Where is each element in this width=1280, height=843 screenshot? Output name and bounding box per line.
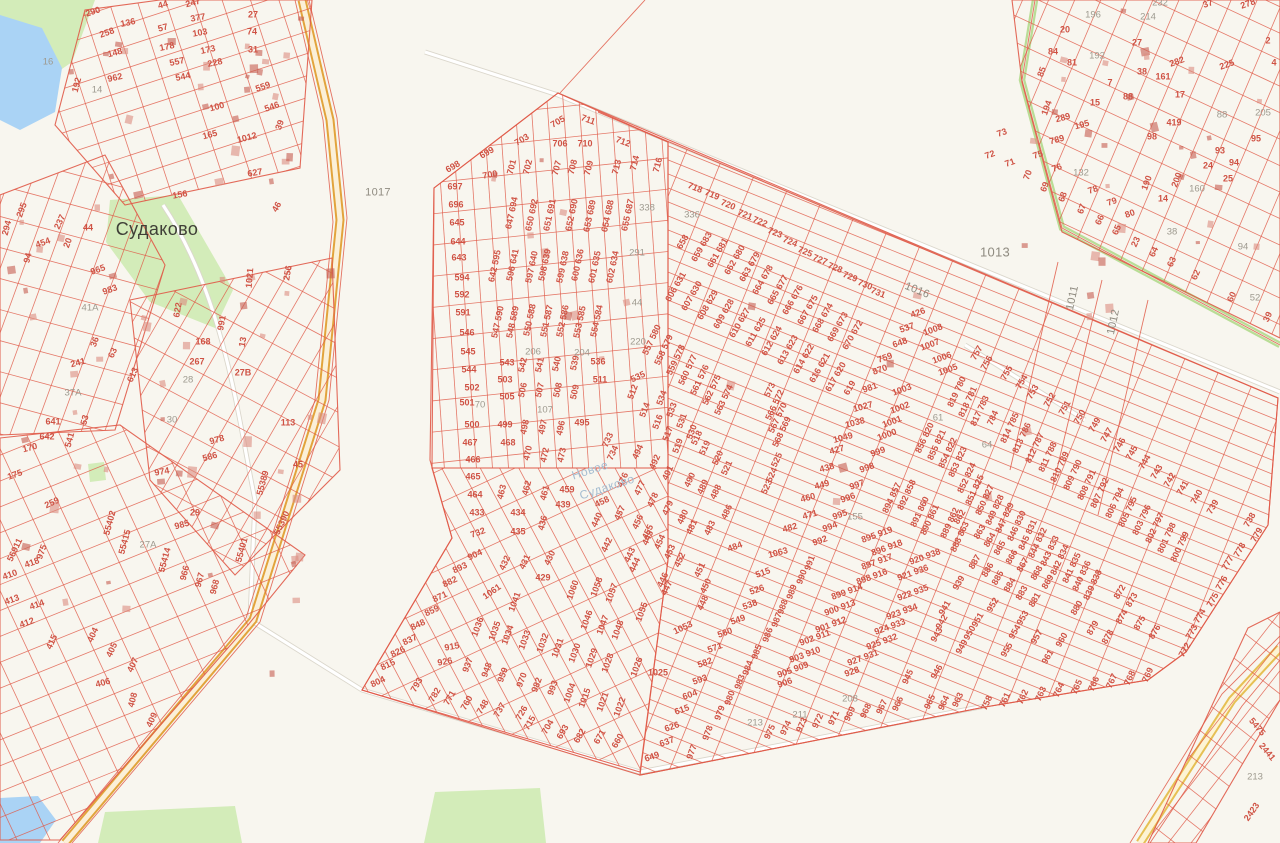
parcel-label[interactable]: 724 <box>781 235 798 249</box>
parcel-label[interactable]: 709 <box>583 160 596 177</box>
parcel-label[interactable]: 1030 <box>567 642 582 664</box>
parcel-label[interactable]: 704 <box>540 718 555 736</box>
parcel-label[interactable]: 282 <box>1168 55 1185 69</box>
parcel-label[interactable]: 407 <box>126 656 141 673</box>
parcel-label[interactable]: 1007 <box>919 337 941 352</box>
parcel-label[interactable]: 718 <box>686 181 703 195</box>
parcel-label[interactable]: 537 <box>898 321 915 335</box>
parcel-label[interactable]: 643 <box>451 254 466 263</box>
parcel-label[interactable]: 23 <box>1130 236 1142 249</box>
parcel-label[interactable]: 53 <box>79 414 90 426</box>
parcel-label[interactable]: 497 <box>537 419 549 436</box>
parcel-label[interactable]: 1034 <box>500 624 515 646</box>
parcel-label[interactable]: 514 <box>638 401 652 418</box>
parcel-label[interactable]: 739 <box>1205 498 1220 516</box>
parcel-label[interactable]: 100 <box>209 101 226 114</box>
parcel-label[interactable]: 716 <box>652 157 665 174</box>
parcel-label[interactable]: 727 <box>811 253 828 267</box>
parcel-label[interactable]: 464 <box>467 491 482 500</box>
parcel-label[interactable]: 915 <box>444 641 460 652</box>
parcel-label[interactable]: 615 <box>673 703 690 717</box>
parcel-label[interactable]: 712 <box>614 135 631 149</box>
parcel-label[interactable]: 431 <box>518 553 533 570</box>
parcel-label[interactable]: 960 <box>1054 631 1069 649</box>
parcel-label[interactable]: 483 <box>703 519 718 536</box>
parcel-label[interactable]: 427 <box>829 444 846 457</box>
parcel-label[interactable]: 1029 <box>584 647 599 669</box>
parcel-label[interactable]: 168 <box>195 338 210 347</box>
parcel-label[interactable]: 46 <box>271 200 284 213</box>
parcel-label[interactable]: 968 <box>859 702 874 719</box>
parcel-label[interactable]: 926 <box>437 656 453 667</box>
parcel-label[interactable]: 769 <box>1141 666 1156 683</box>
parcel-label[interactable]: 986 <box>761 626 775 643</box>
parcel-label[interactable]: 904 <box>466 548 483 563</box>
parcel-label[interactable]: 777 <box>1220 554 1235 572</box>
parcel-label[interactable]: 745 <box>1124 444 1139 462</box>
parcel-label[interactable]: 490 <box>683 471 698 488</box>
parcel-label[interactable]: 75 <box>1032 149 1044 161</box>
parcel-label[interactable]: 720 <box>719 198 736 212</box>
parcel-label[interactable]: 756 <box>979 354 994 372</box>
parcel-label[interactable]: 540 <box>551 356 563 373</box>
parcel-label[interactable]: 84 <box>1048 48 1058 57</box>
parcel-label[interactable]: 55390 <box>273 510 292 536</box>
parcel-label[interactable]: 544 <box>461 366 476 375</box>
parcel-label[interactable]: 44 <box>83 224 93 233</box>
parcel-label[interactable]: 789 <box>1049 134 1066 147</box>
parcel-label[interactable]: 410 <box>1 568 18 582</box>
parcel-label[interactable]: 865 <box>992 539 1007 557</box>
parcel-label[interactable]: 267 <box>189 358 204 367</box>
parcel-label[interactable]: 983 <box>101 283 118 297</box>
parcel-label[interactable]: 175 <box>6 468 23 482</box>
parcel-label[interactable]: 741 <box>1175 479 1190 497</box>
parcel-label[interactable]: 728 <box>826 261 843 275</box>
parcel-label[interactable]: 88 <box>1123 93 1133 102</box>
parcel-label[interactable]: 472 <box>539 447 551 464</box>
parcel-label[interactable]: 604 <box>681 688 698 702</box>
parcel-label[interactable]: 200 <box>1170 171 1184 188</box>
parcel-label[interactable]: 543 <box>499 359 514 368</box>
parcel-label[interactable]: 534 <box>655 389 669 406</box>
parcel-label[interactable]: 961 <box>1040 648 1055 666</box>
parcel-label[interactable]: 2441 <box>1257 741 1277 762</box>
parcel-label[interactable]: 55402 <box>102 510 117 537</box>
parcel-label[interactable]: 642 595 <box>487 249 503 283</box>
parcel-label[interactable]: 438 <box>819 462 836 475</box>
parcel-label[interactable]: 873 <box>1124 591 1139 609</box>
parcel-label[interactable]: 523 <box>760 478 775 495</box>
parcel-label[interactable]: 753 <box>1025 383 1040 401</box>
parcel-label[interactable]: 859 <box>423 604 440 619</box>
parcel-label[interactable]: 994 <box>821 520 838 534</box>
parcel-label[interactable]: 874 <box>1114 608 1129 626</box>
parcel-label[interactable]: 406 <box>95 677 112 690</box>
parcel-label[interactable]: 74 <box>247 28 257 37</box>
parcel-label[interactable]: 148 <box>107 47 124 60</box>
parcel-label[interactable]: 951 <box>970 611 985 629</box>
parcel-label[interactable]: 954 <box>1007 623 1022 641</box>
parcel-label[interactable]: 882 <box>441 575 458 590</box>
parcel-label[interactable]: 784 <box>986 409 1001 426</box>
parcel-label[interactable]: 652 690 <box>564 198 580 232</box>
parcel-label[interactable]: 103 <box>192 27 208 38</box>
parcel-label[interactable]: 1015 <box>577 687 592 709</box>
parcel-label[interactable]: 878 <box>1100 628 1115 646</box>
parcel-label[interactable]: 793 <box>409 676 424 694</box>
parcel-label[interactable]: 178 <box>159 41 176 53</box>
parcel-label[interactable]: 2423 <box>1243 801 1262 823</box>
parcel-label[interactable]: 771 <box>442 689 457 707</box>
parcel-label[interactable]: 883 <box>1014 584 1029 602</box>
parcel-label[interactable]: 27 <box>248 11 258 20</box>
parcel-label[interactable]: 94 <box>1229 159 1239 168</box>
parcel-label[interactable]: 194 <box>1040 99 1054 116</box>
parcel-label[interactable]: 765 <box>1070 678 1085 695</box>
parcel-label[interactable]: 71 <box>1004 157 1016 169</box>
parcel-label[interactable]: 228 <box>207 57 224 69</box>
parcel-label[interactable]: 56911 <box>6 537 25 563</box>
parcel-label[interactable]: 774 <box>1192 607 1207 625</box>
parcel-label[interactable]: 93 <box>1215 147 1225 156</box>
parcel-label[interactable]: 27В <box>235 369 252 378</box>
parcel-label[interactable]: 544 <box>175 71 192 83</box>
parcel-label[interactable]: 419 <box>1166 119 1181 128</box>
parcel-label[interactable]: 468 <box>500 439 515 448</box>
parcel-label[interactable]: 867 <box>1015 556 1030 574</box>
parcel-label[interactable]: 560 <box>716 626 733 640</box>
parcel-label[interactable]: 1028 <box>600 652 615 674</box>
parcel-label[interactable]: 714 <box>629 155 642 172</box>
parcel-label[interactable]: 750 <box>1072 408 1087 426</box>
parcel-label[interactable]: 848 <box>409 618 426 633</box>
parcel-label[interactable]: 641 <box>45 418 60 427</box>
parcel-label[interactable]: 869 <box>1040 573 1055 591</box>
parcel-label[interactable]: 278 <box>1239 0 1256 11</box>
parcel-label[interactable]: 517 <box>661 425 675 442</box>
parcel-label[interactable]: 654 688 <box>600 199 616 233</box>
parcel-label[interactable]: 548 589 <box>505 305 521 339</box>
parcel-label[interactable]: 642 <box>39 433 54 442</box>
parcel-label[interactable]: 55401 <box>234 537 249 564</box>
parcel-label[interactable]: 55415 <box>117 529 132 556</box>
parcel-label[interactable]: 984 <box>741 659 755 676</box>
parcel-label[interactable]: 554 584 <box>589 304 605 338</box>
parcel-label[interactable]: 509 <box>569 384 581 401</box>
parcel-label[interactable]: 697 <box>447 183 462 192</box>
parcel-label[interactable]: 414 <box>28 598 45 612</box>
parcel-label[interactable]: 1047 <box>595 614 610 636</box>
parcel-label[interactable]: 498 <box>519 419 531 436</box>
parcel-label[interactable]: 15 <box>1090 99 1100 108</box>
parcel-label[interactable]: 721 <box>736 208 753 222</box>
parcel-label[interactable]: 170 <box>22 442 39 455</box>
parcel-label[interactable]: 98 <box>1147 133 1157 142</box>
parcel-label[interactable]: 946 <box>929 663 944 681</box>
parcel-label[interactable]: 943 <box>929 626 944 644</box>
parcel-label[interactable]: 550 588 <box>522 303 538 337</box>
parcel-label[interactable]: 67 <box>1076 203 1088 215</box>
parcel-label[interactable]: 404 <box>86 626 101 643</box>
parcel-label[interactable]: 978 <box>209 434 226 447</box>
parcel-label[interactable]: 922 935 <box>896 583 930 603</box>
parcel-label[interactable]: 762 <box>1016 688 1031 705</box>
parcel-label[interactable]: 256 <box>282 265 293 281</box>
parcel-label[interactable]: 190 <box>1140 174 1154 191</box>
parcel-label[interactable]: 928 <box>843 665 860 679</box>
parcel-label[interactable]: 981 <box>861 381 878 395</box>
parcel-label[interactable]: 76 <box>1051 162 1063 174</box>
parcel-label[interactable]: 66 <box>1094 214 1106 227</box>
parcel-label[interactable]: 705 <box>549 114 567 129</box>
parcel-label[interactable]: 939 <box>951 574 966 592</box>
parcel-label[interactable]: 491 <box>661 464 676 481</box>
parcel-label[interactable]: 501 <box>459 399 474 408</box>
parcel-label[interactable]: 450 <box>699 577 714 594</box>
parcel-label[interactable]: 957 <box>1029 628 1044 646</box>
parcel-label[interactable]: 521 <box>720 459 735 476</box>
parcel-label[interactable]: 622 <box>172 302 183 318</box>
parcel-label[interactable]: 473 <box>556 447 568 464</box>
parcel-label[interactable]: 237 <box>53 213 68 230</box>
parcel-label[interactable]: 470 <box>522 445 534 462</box>
parcel-label[interactable]: 766 <box>1087 675 1102 692</box>
parcel-label[interactable]: 55389 <box>255 470 270 497</box>
parcel-label[interactable]: 38 <box>1137 68 1147 77</box>
parcel-label[interactable]: 645 <box>449 219 464 228</box>
parcel-label[interactable]: 700 <box>482 169 498 180</box>
parcel-label[interactable]: 442 <box>600 536 615 553</box>
parcel-label[interactable]: 921 936 <box>896 563 930 583</box>
parcel-label[interactable]: 586 <box>202 451 219 464</box>
parcel-label[interactable]: 660 <box>610 732 625 750</box>
parcel-label[interactable]: 970 <box>515 671 529 688</box>
parcel-label[interactable]: 723 <box>766 226 783 240</box>
parcel-label[interactable]: 779 <box>1249 526 1264 544</box>
parcel-label[interactable]: 948 <box>480 661 494 678</box>
parcel-label[interactable]: 707 <box>551 160 564 177</box>
parcel-label[interactable]: 136 <box>120 17 137 29</box>
parcel-label[interactable]: 1005 <box>937 362 959 377</box>
parcel-label[interactable]: 876 <box>1147 623 1162 641</box>
parcel-label[interactable]: 651 691 <box>542 198 558 232</box>
parcel-label[interactable]: 500 <box>464 421 479 430</box>
parcel-label[interactable]: 429 <box>535 574 550 583</box>
parcel-label[interactable]: 39 <box>274 119 286 131</box>
parcel-label[interactable]: 696 <box>448 201 463 210</box>
parcel-label[interactable]: 1046 <box>579 609 594 631</box>
parcel-label[interactable]: 494 <box>631 443 646 460</box>
parcel-label[interactable]: 488 <box>709 483 724 500</box>
parcel-label[interactable]: 965 <box>89 263 106 277</box>
parcel-label[interactable]: 1025 <box>648 669 668 678</box>
parcel-label[interactable]: 430 <box>543 549 558 566</box>
parcel-label[interactable]: 295 <box>15 201 29 218</box>
parcel-label[interactable]: 967 <box>875 698 890 715</box>
parcel-label[interactable]: 993 <box>546 679 560 696</box>
parcel-label[interactable]: 1061 <box>481 583 503 602</box>
parcel-label[interactable]: 644 <box>450 238 465 247</box>
parcel-label[interactable]: 1022 <box>612 696 627 718</box>
parcel-label[interactable]: 1053 <box>672 620 694 637</box>
parcel-label[interactable]: 870 <box>871 363 888 377</box>
parcel-label[interactable]: 776 <box>1214 574 1229 592</box>
parcel-label[interactable]: 1063 <box>767 546 789 560</box>
parcel-label[interactable]: 985 <box>750 643 764 660</box>
parcel-label[interactable]: 768 <box>1123 669 1138 686</box>
parcel-label[interactable]: 987 <box>770 611 784 628</box>
parcel-label[interactable]: 1033 <box>517 629 532 651</box>
parcel-label[interactable]: 775 <box>1205 591 1220 609</box>
parcel-label[interactable]: 974 <box>779 719 794 736</box>
parcel-label[interactable]: 36 <box>89 336 101 348</box>
parcel-label[interactable]: 502 <box>464 384 479 393</box>
parcel-label[interactable]: 37 <box>1202 0 1214 10</box>
parcel-label[interactable]: 991 <box>803 554 817 571</box>
parcel-label[interactable]: 27 <box>1132 39 1142 48</box>
parcel-label[interactable]: 732 <box>469 526 486 540</box>
parcel-label[interactable]: 767 <box>1105 672 1120 689</box>
parcel-label[interactable]: 949 <box>954 638 969 656</box>
parcel-label[interactable]: 439 <box>555 501 570 510</box>
parcel-label[interactable]: 1031 <box>550 637 565 659</box>
parcel-label[interactable]: 535 <box>629 370 646 385</box>
parcel-label[interactable]: 258 <box>98 26 115 40</box>
parcel-label[interactable]: 875 <box>1132 614 1147 632</box>
parcel-label[interactable]: 748 <box>475 698 490 716</box>
parcel-label[interactable]: 815 <box>379 658 396 673</box>
parcel-label[interactable]: 747 <box>1099 426 1114 444</box>
parcel-label[interactable]: 60 <box>1226 291 1238 304</box>
parcel-label[interactable]: 436 <box>537 515 550 532</box>
parcel-label[interactable]: 1060 <box>565 579 580 601</box>
parcel-label[interactable]: 471 <box>802 509 819 522</box>
parcel-label[interactable]: 156 <box>172 189 188 200</box>
parcel-label[interactable]: 952 <box>985 596 1000 614</box>
parcel-label[interactable]: 582 <box>696 656 713 670</box>
parcel-label[interactable]: 998 <box>858 461 875 475</box>
parcel-label[interactable]: 78 <box>1087 184 1099 196</box>
parcel-label[interactable]: 722 <box>751 215 768 229</box>
parcel-label[interactable]: 871 <box>431 590 448 605</box>
parcel-label[interactable]: 515 <box>754 566 771 580</box>
parcel-label[interactable]: 559 <box>254 80 271 94</box>
parcel-label[interactable]: 945 <box>901 668 916 685</box>
parcel-label[interactable]: 1008 <box>922 322 944 337</box>
parcel-label[interactable]: 1041 <box>507 591 522 613</box>
parcel-label[interactable]: 613 <box>126 366 141 383</box>
parcel-label[interactable]: 751 <box>1057 399 1072 417</box>
parcel-label[interactable]: 413 <box>3 593 20 607</box>
parcel-label[interactable]: 880 <box>1069 599 1084 617</box>
parcel-label[interactable]: 752 <box>1042 391 1057 409</box>
parcel-label[interactable]: 1021 <box>595 691 610 713</box>
parcel-label[interactable]: 699 <box>478 145 496 160</box>
parcel-label[interactable]: 45 <box>293 461 303 470</box>
parcel-label[interactable]: 409 <box>145 711 160 728</box>
parcel-label[interactable]: 760 <box>459 694 474 712</box>
parcel-label[interactable]: 415 <box>45 633 60 650</box>
parcel-label[interactable]: 516 <box>651 413 665 430</box>
parcel-label[interactable]: 706 <box>552 140 567 149</box>
parcel-label[interactable]: 1021 <box>245 268 256 289</box>
parcel-label[interactable]: 377 <box>190 12 206 23</box>
map-canvas[interactable]: 2904424725813614819296257377103178557173… <box>0 0 1280 843</box>
parcel-label[interactable]: 57 <box>157 22 169 33</box>
parcel-label[interactable]: 1058 <box>589 576 604 598</box>
parcel-label[interactable]: 55414 <box>157 547 172 574</box>
parcel-label[interactable]: 887 <box>967 553 982 571</box>
parcel-label[interactable]: 837 <box>401 633 418 648</box>
parcel-label[interactable]: 289 <box>1055 112 1072 125</box>
parcel-label[interactable]: 161 <box>1155 73 1170 82</box>
parcel-label[interactable]: 1032 <box>535 632 550 654</box>
parcel-label[interactable]: 492 <box>648 453 663 470</box>
parcel-label[interactable]: 1026 <box>629 656 644 678</box>
parcel-label[interactable]: 465 <box>465 473 480 482</box>
parcel-label[interactable]: 983 <box>733 673 747 690</box>
parcel-label[interactable]: 598 639 <box>537 248 553 282</box>
parcel-label[interactable]: 408 <box>127 692 140 709</box>
parcel-label[interactable]: 740 <box>1189 488 1204 506</box>
parcel-label[interactable]: 879 <box>1085 619 1100 637</box>
parcel-label[interactable]: 650 692 <box>524 198 540 232</box>
parcel-label[interactable]: 967 <box>194 572 207 589</box>
parcel-label[interactable]: 804 <box>369 675 386 690</box>
parcel-label[interactable]: 405 <box>105 641 120 658</box>
parcel-label[interactable]: 601 635 <box>587 250 603 284</box>
parcel-label[interactable]: 974 <box>154 466 170 477</box>
parcel-label[interactable]: 434 <box>510 509 525 518</box>
parcel-label[interactable]: 905 909 <box>776 660 810 680</box>
parcel-label[interactable]: 294 <box>1 220 14 237</box>
parcel-label[interactable]: 711 <box>580 113 597 126</box>
parcel-label[interactable]: 959 <box>496 666 510 683</box>
parcel-label[interactable]: 495 <box>574 419 589 428</box>
parcel-label[interactable]: 996 <box>839 491 856 505</box>
parcel-label[interactable]: 412 <box>18 616 35 630</box>
parcel-label[interactable]: 1048 <box>610 619 625 641</box>
parcel-label[interactable]: 549 <box>729 613 746 627</box>
parcel-label[interactable]: 763 <box>1034 685 1049 702</box>
parcel-label[interactable]: 451 <box>693 561 708 578</box>
parcel-label[interactable]: 73 <box>996 127 1008 139</box>
parcel-label[interactable]: 433 <box>469 509 484 518</box>
parcel-label[interactable]: 627 <box>247 167 263 178</box>
parcel-label[interactable]: 594 <box>454 274 469 283</box>
parcel-label[interactable]: 955 <box>999 641 1014 659</box>
parcel-label[interactable]: 1038 <box>844 416 866 430</box>
parcel-label[interactable]: 70 <box>1022 169 1034 181</box>
parcel-label[interactable]: 972 <box>811 712 826 729</box>
parcel-label[interactable]: 20 <box>1060 26 1070 35</box>
parcel-label[interactable]: 980 <box>723 689 737 706</box>
parcel-label[interactable]: 14 <box>1158 195 1168 204</box>
parcel-label[interactable]: 457 <box>613 504 628 521</box>
parcel-label[interactable]: 62 <box>1190 269 1202 282</box>
parcel-label[interactable]: 507 <box>534 382 546 399</box>
parcel-label[interactable]: 637 <box>658 735 675 749</box>
parcel-label[interactable]: 503 <box>497 376 512 385</box>
parcel-label[interactable]: 764 <box>1052 681 1067 698</box>
parcel-label[interactable]: 758 <box>980 694 995 711</box>
parcel-label[interactable]: 538 <box>741 598 758 612</box>
parcel-label[interactable]: 658 <box>675 233 690 251</box>
parcel-label[interactable]: 29 <box>190 509 200 518</box>
parcel-label[interactable]: 69 <box>1039 181 1051 193</box>
parcel-label[interactable]: 1002 <box>889 400 911 415</box>
